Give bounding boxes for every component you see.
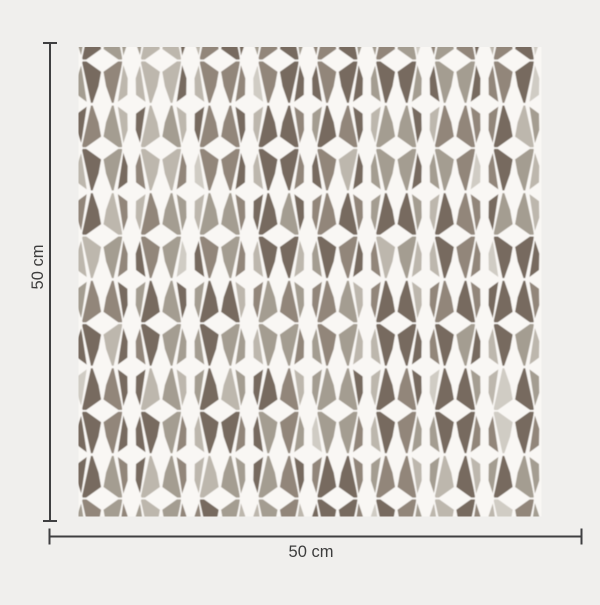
svg-text:50 cm: 50 cm: [29, 245, 47, 290]
svg-text:50 cm: 50 cm: [289, 543, 334, 561]
